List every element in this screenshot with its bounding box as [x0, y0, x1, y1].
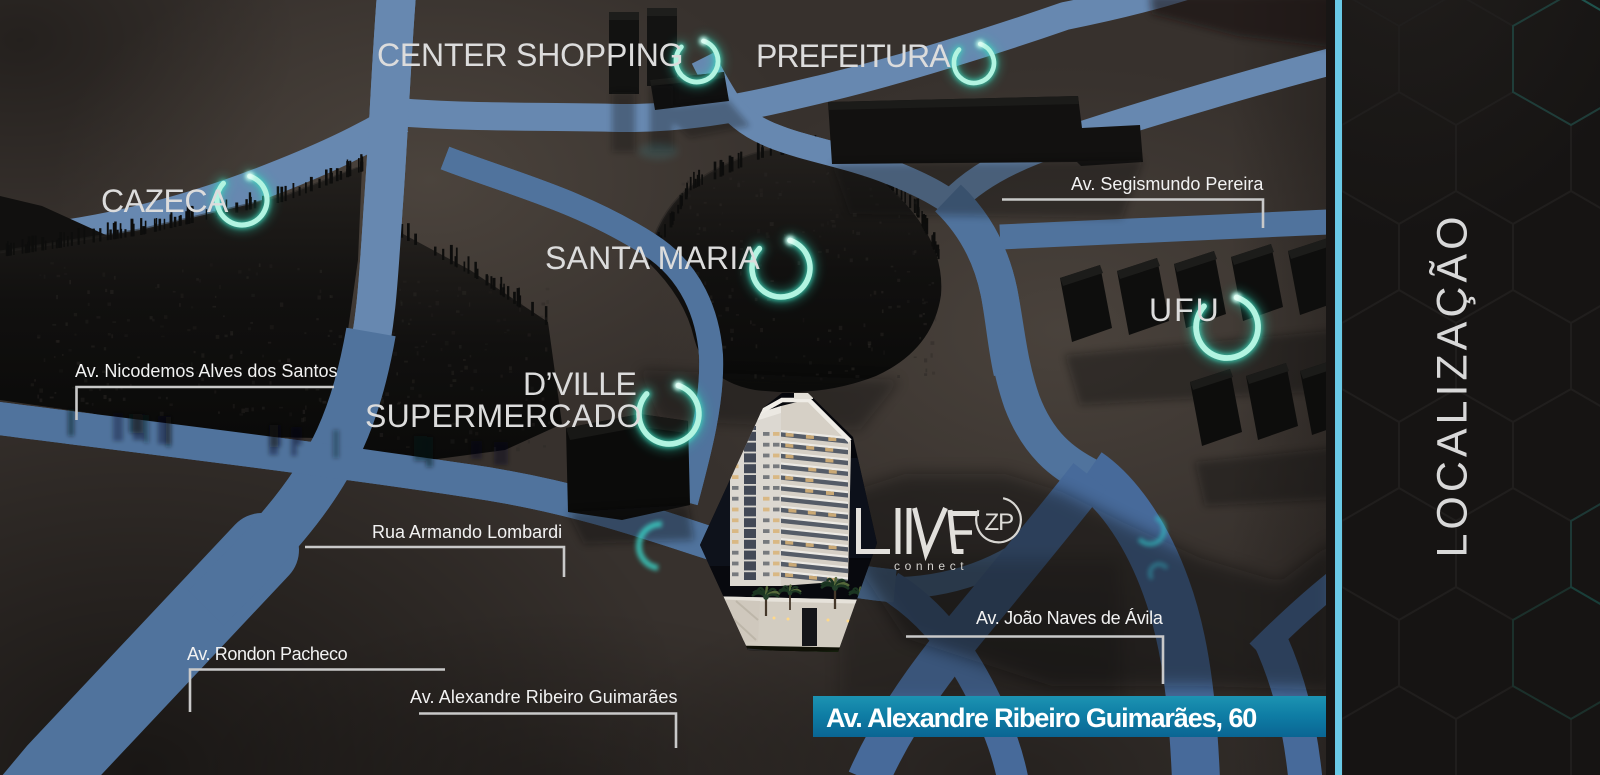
svg-text:ZP: ZP: [985, 509, 1014, 536]
svg-text:connect: connect: [894, 559, 968, 573]
